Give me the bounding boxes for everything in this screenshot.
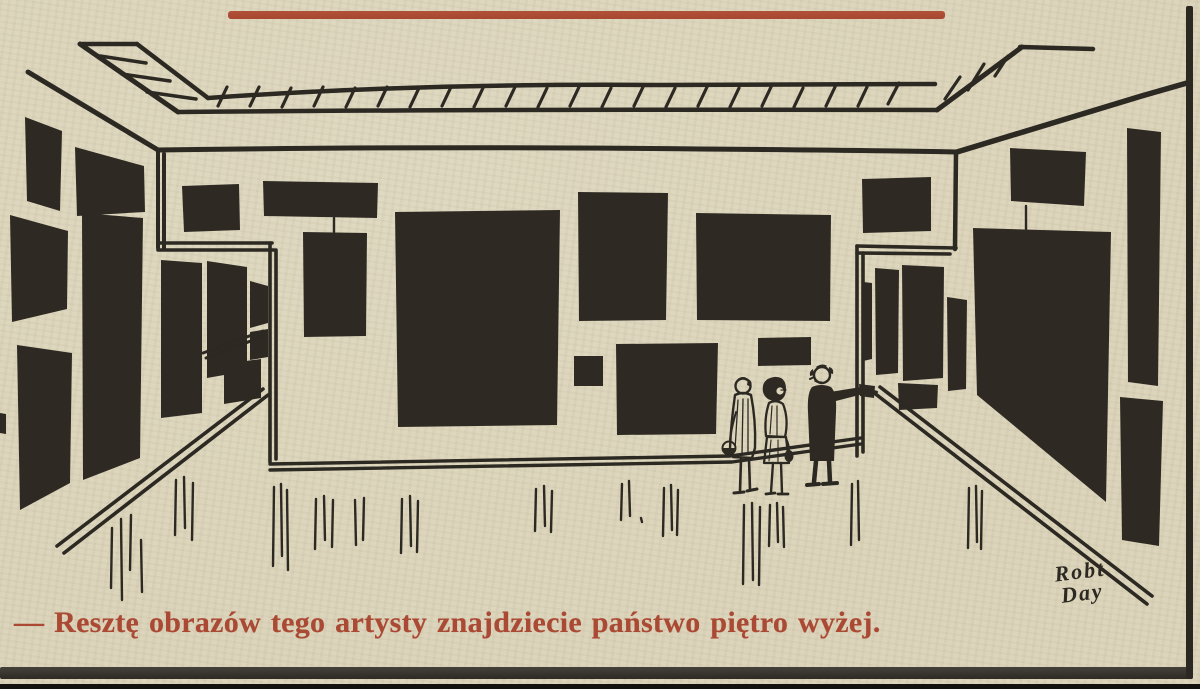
painting [25,117,62,211]
right-alcove [857,246,967,456]
painting [263,181,378,218]
signature: Robt Day [1052,556,1109,609]
painting [1120,397,1163,546]
floor-marks [111,477,982,600]
painting [1010,148,1086,206]
painting [207,261,247,378]
painting [973,228,1111,502]
panel-right-border [1186,6,1193,679]
skylight [80,44,1093,112]
signature-line-2: Day [1059,578,1105,608]
bottom-rule [0,667,1193,679]
visitors [723,365,878,494]
painting [303,232,367,337]
painting [578,192,668,321]
painting [758,337,811,366]
cartoon-illustration: Robt Day [0,0,1200,610]
right-wall [973,128,1163,546]
left-wall [0,117,164,510]
painting [574,356,603,386]
painting [82,213,143,480]
visitor-woman [763,377,794,494]
painting [902,265,944,381]
cartoon-caption: — Resztę obrazów tego artysty znajdzieci… [14,606,1074,640]
painting [161,260,202,418]
painting [862,177,931,233]
painting [0,413,6,434]
baseboards [57,387,1152,604]
painting [182,184,240,232]
painting [863,282,872,361]
painting [947,297,967,391]
left-alcove [158,184,276,462]
painting [875,268,899,375]
guide-pointing [807,365,877,485]
visitor-man-back [723,378,758,493]
painting [10,215,68,322]
painting [395,210,560,427]
painting [17,345,72,510]
purse [785,450,794,462]
painting [696,213,831,321]
painting [250,281,268,328]
painting [616,343,718,435]
painting [75,147,145,216]
page-bottom-edge-strip [0,684,1200,689]
painting [224,359,261,404]
painting [1127,128,1161,386]
